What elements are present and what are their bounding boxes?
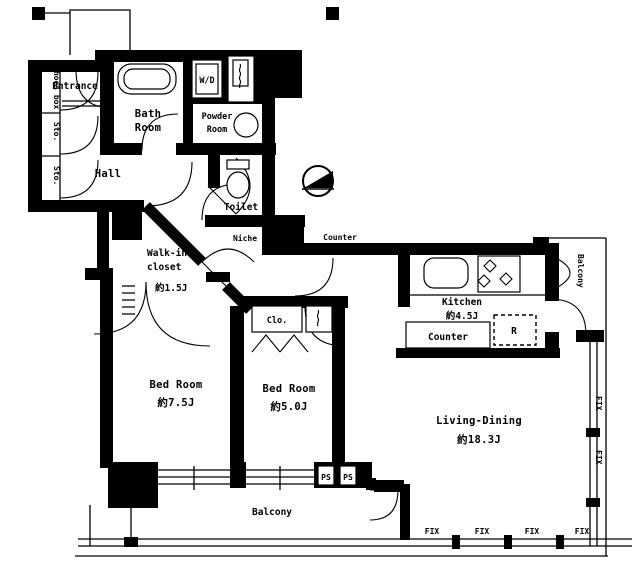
kitchen-sink bbox=[424, 258, 468, 288]
walk-in-closet-label-1: Walk-in bbox=[147, 248, 187, 259]
floor-plan-drawing: Entrance Shoes box Sto. Sto. Bath Room W… bbox=[0, 0, 640, 569]
kitchen-size-label: 約4.5J bbox=[446, 310, 478, 322]
refrigerator-label: R bbox=[511, 326, 517, 337]
bed-room-2-size-label: 約5.0J bbox=[270, 400, 307, 413]
powder-room-label-2: Room bbox=[207, 125, 227, 135]
toilet-bowl bbox=[227, 172, 249, 198]
fix-window-label-6: FIX bbox=[594, 450, 603, 465]
living-dining-size-label: 約18.3J bbox=[457, 433, 501, 446]
kitchen-label: Kitchen bbox=[442, 297, 482, 308]
floor-plan: Entrance Shoes box Sto. Sto. Bath Room W… bbox=[0, 0, 640, 569]
closet-label: Clo. bbox=[267, 316, 287, 326]
storage-2-label: Sto. bbox=[52, 166, 61, 185]
ps-2-label: PS bbox=[343, 473, 353, 482]
water-heater-glyph bbox=[239, 64, 240, 88]
exterior-corner-marks bbox=[32, 7, 339, 20]
north-arrow-icon bbox=[302, 166, 334, 196]
wall-segments bbox=[28, 50, 604, 549]
balcony-right-label: Balcony bbox=[576, 254, 585, 288]
fix-window-label-3: FIX bbox=[525, 527, 540, 536]
niche-label: Niche bbox=[233, 233, 257, 243]
kitchen-counter-label: Counter bbox=[428, 332, 468, 343]
bathtub-inner bbox=[124, 69, 170, 89]
storage-1-label: Sto. bbox=[52, 122, 61, 141]
pipe-shaft-box bbox=[306, 306, 332, 332]
closet-shelf-hatching bbox=[122, 286, 135, 314]
toilet-label: Toilet bbox=[224, 202, 258, 213]
living-dining-label: Living-Dining bbox=[436, 415, 522, 427]
closet-folding-door bbox=[252, 335, 308, 352]
bath-room-label-1: Bath bbox=[135, 108, 162, 120]
ps-1-label: PS bbox=[321, 473, 331, 482]
fix-window-label-1: FIX bbox=[425, 527, 440, 536]
powder-room-label-1: Powder bbox=[202, 112, 233, 122]
balcony-bottom-label: Balcony bbox=[252, 507, 292, 518]
counter-top-label: Counter bbox=[323, 233, 357, 242]
bed-room-1-label: Bed Room bbox=[150, 379, 203, 391]
walk-in-closet-size-label: 約1.5J bbox=[155, 282, 187, 294]
bath-room-label-2: Room bbox=[135, 122, 162, 134]
washbasin bbox=[234, 113, 258, 137]
hall-label: Hall bbox=[95, 168, 122, 180]
shoes-box-label: Shoes box bbox=[52, 66, 61, 110]
toilet-tank bbox=[227, 160, 249, 169]
fix-window-label-5: FIX bbox=[594, 396, 603, 411]
fix-window-label-4: FIX bbox=[575, 527, 590, 536]
bed-room-2-label: Bed Room bbox=[263, 383, 316, 395]
bed-room-1-size-label: 約7.5J bbox=[157, 396, 194, 409]
walk-in-closet-label-2: closet bbox=[147, 262, 181, 273]
fix-window-label-2: FIX bbox=[475, 527, 490, 536]
washer-dryer-label: W/D bbox=[199, 76, 214, 86]
